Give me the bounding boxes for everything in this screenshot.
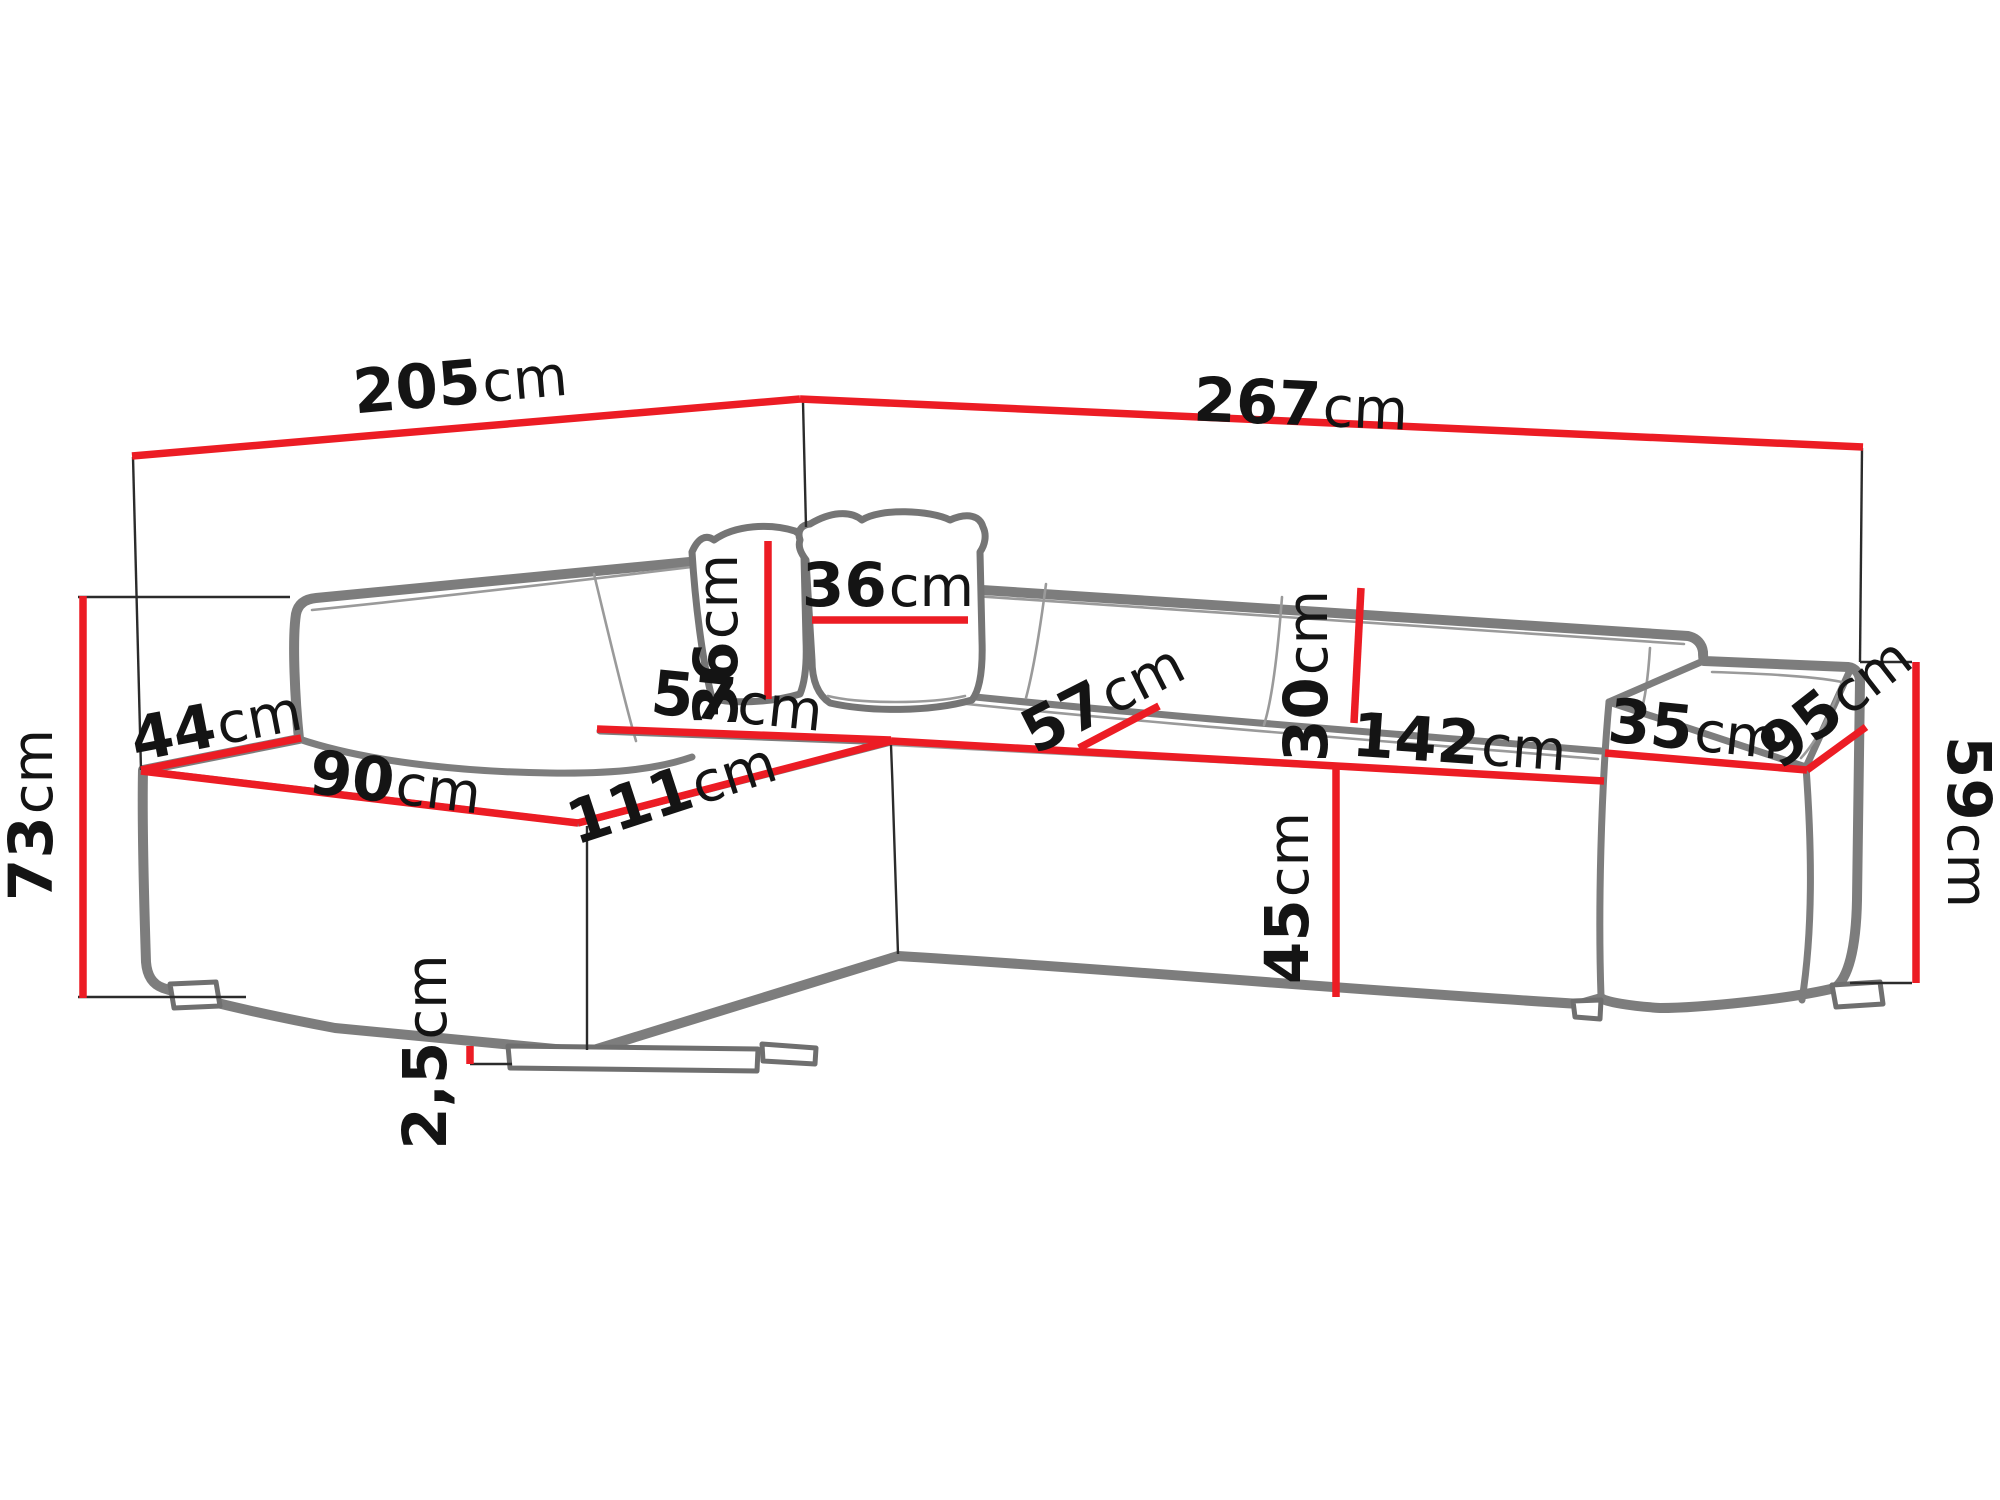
dim-label-pillow-height: 36cm xyxy=(681,554,752,726)
dim-label-leg-height: 2,5cm xyxy=(390,954,461,1149)
dimension-diagram: 205cm 267cm 73cm 44cm 90cm 111cm 57cm 36… xyxy=(0,0,2000,1500)
left-back-leg xyxy=(170,982,220,1008)
dim-label-back-width-right: 267cm xyxy=(1192,364,1410,444)
chaise-front-plinth xyxy=(508,1046,758,1071)
dim-label-overall-height: 73cm xyxy=(0,729,67,901)
dim-label-seat-height: 45cm xyxy=(1252,812,1323,984)
projection-corner xyxy=(803,402,806,527)
dim-label-back-width-left: 205cm xyxy=(350,339,570,428)
dim-label-pillow-width: 36cm xyxy=(802,550,974,621)
dim-label-back-cushion-height: 30cm xyxy=(1271,590,1342,762)
right-front-leg xyxy=(1573,1000,1601,1019)
sofa-diagram-canvas: 205cm 267cm 73cm 44cm 90cm 111cm 57cm 36… xyxy=(0,0,2000,1500)
armrest-leg xyxy=(1832,982,1883,1007)
chaise-side-foot xyxy=(762,1044,816,1064)
dim-label-armrest-height: 59cm xyxy=(1933,736,2000,908)
projection-right-end xyxy=(1860,448,1862,662)
